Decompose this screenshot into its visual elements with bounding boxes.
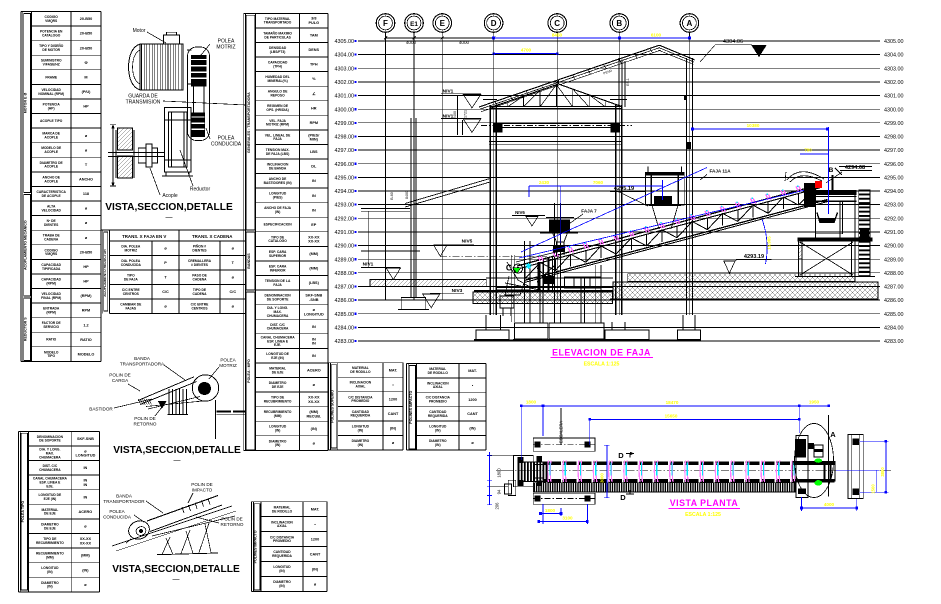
svg-text:MOTRIZ: MOTRIZ [219,363,237,368]
svg-text:CARGA: CARGA [112,378,129,383]
svg-text:MODELO: MODELO [78,353,95,357]
svg-text:2430: 2430 [539,180,550,185]
svg-text:1200: 1200 [311,537,319,541]
svg-text:DE EJE: DE EJE [272,370,285,374]
svg-text:VMQRS: VMQRS [45,19,58,23]
svg-text:DE EJE: DE EJE [272,385,285,389]
svg-text:PROMEDIO: PROMEDIO [429,400,447,404]
svg-text:IN: IN [83,495,87,499]
svg-text:PULG: PULG [309,21,320,25]
svg-text:4290.00: 4290.00 [335,244,355,250]
svg-text:C/C: C/C [162,290,169,294]
svg-text:1800: 1800 [545,508,556,513]
svg-text:15650: 15650 [665,413,678,418]
svg-text:94: 94 [497,489,502,494]
svg-text:4289.00: 4289.00 [335,257,355,263]
svg-text:(TPH): (TPH) [273,64,282,68]
svg-text:(MM): (MM) [46,556,54,560]
svg-text:(IN): (IN) [279,584,285,588]
svg-text:(RPM): (RPM) [46,281,56,285]
svg-text:BASTIDORES (IN): BASTIDORES (IN) [264,181,292,185]
svg-text:IN: IN [312,354,316,358]
svg-text:(IN): (IN) [358,428,364,432]
svg-text:CADENA: CADENA [192,277,207,281]
svg-text:(RPM): (RPM) [46,311,56,315]
svg-text:4296.00: 4296.00 [884,162,904,168]
svg-text:P: P [164,261,167,265]
svg-text:4000: 4000 [406,40,417,45]
svg-text:BANDA: BANDA [134,356,151,361]
svg-text:FAJA 7: FAJA 7 [581,209,597,214]
svg-text:HP: HP [83,280,89,284]
svg-text:1800: 1800 [526,400,537,405]
svg-text:4294.00: 4294.00 [884,189,904,195]
svg-text:4301.00: 4301.00 [884,94,904,100]
svg-text:4700: 4700 [521,48,532,53]
svg-text:(MM): (MM) [274,414,282,418]
svg-text:XX-XX: XX-XX [80,537,92,541]
svg-text:C/C: C/C [230,290,237,294]
svg-text:3000: 3000 [600,473,605,483]
svg-text:A: A [830,430,836,439]
svg-text:A: A [687,19,693,28]
svg-text:ACOPLAMIENTO REDUCTOR: ACOPLAMIENTO REDUCTOR [103,249,107,297]
svg-text:DE SOPORTE: DE SOPORTE [39,439,61,443]
svg-text:FINAL (RPM): FINAL (RPM) [41,296,61,300]
svg-text:4291.00: 4291.00 [884,230,904,236]
svg-text:PROMEDIO: PROMEDIO [351,399,369,403]
svg-text:TIPO: TIPO [47,354,55,358]
svg-text:MINERAL(%): MINERAL(%) [268,79,288,83]
svg-text:(MM): (MM) [309,252,319,256]
svg-text:4304.06: 4304.06 [723,39,743,45]
svg-text:CADENA: CADENA [44,238,59,242]
svg-text:MAT.: MAT. [311,508,320,512]
svg-text:IN: IN [312,325,316,329]
svg-text:4305.00: 4305.00 [884,39,904,45]
svg-text:AXIAL: AXIAL [433,385,443,389]
svg-text:BANDA: BANDA [116,494,133,499]
svg-text:RECUB.: RECUB. [307,415,322,419]
svg-text:4288.00: 4288.00 [884,271,904,277]
svg-text:CANT: CANT [467,412,478,416]
svg-text:4295.00: 4295.00 [884,176,904,182]
svg-text:EJE.: EJE. [46,485,53,489]
svg-text:POLINES IMPACTO: POLINES IMPACTO [409,390,413,423]
svg-text:(MM): (MM) [309,267,319,271]
svg-text:4291.00: 4291.00 [335,230,355,236]
svg-text:20-B50: 20-B50 [80,17,92,21]
svg-text:CATALOGO: CATALOGO [42,34,61,38]
svg-text:XX-XX: XX-XX [308,396,320,400]
svg-text:REQUERIDA: REQUERIDA [351,414,371,418]
svg-text:(IN): (IN) [47,585,53,589]
svg-text:3100: 3100 [562,516,573,521]
svg-text:C: C [506,263,512,273]
svg-text:4299.00: 4299.00 [335,121,355,127]
svg-text:LONGITUD: LONGITUD [75,454,95,458]
svg-text:REQUERIDA: REQUERIDA [272,554,292,558]
svg-text:MIN): MIN) [310,138,319,142]
svg-text:TRANS. X FAJA EN V: TRANS. X FAJA EN V [122,234,166,239]
svg-text:IN: IN [312,337,316,341]
svg-text:4287.00: 4287.00 [884,285,904,291]
svg-text:RECUBRIMIENTO: RECUBRIMIENTO [36,541,64,545]
svg-text:B-60: B-60 [390,192,394,200]
svg-text:4304.00: 4304.00 [884,53,904,59]
svg-text:TRANS. X CADENA: TRANS. X CADENA [192,234,233,239]
svg-text:FAJA: FAJA [273,283,282,287]
svg-text:C: C [554,19,560,28]
svg-text:RATIO: RATIO [46,338,56,342]
svg-text:(RPM): (RPM) [81,294,93,298]
svg-text:TRANSPORTADORA: TRANSPORTADORA [120,362,165,367]
svg-text:20-B50: 20-B50 [80,250,92,254]
svg-text:(IN): (IN) [47,570,53,574]
svg-text:IN: IN [83,479,87,483]
svg-text:(IN): (IN) [312,567,319,571]
svg-text:-SNB: -SNB [309,298,319,302]
svg-text:ACERO: ACERO [79,510,93,514]
svg-text:ESPECIFICACION: ESPECIFICACION [264,223,293,227]
svg-text:ELEVACION DE FAJA: ELEVACION DE FAJA [552,347,651,357]
svg-text:4299.00: 4299.00 [884,121,904,127]
svg-text:DE RODILLO: DE RODILLO [428,371,449,375]
svg-text:DE PARTICULAS: DE PARTICULAS [264,35,291,39]
svg-text:4304.00: 4304.00 [335,53,355,59]
svg-text:1200: 1200 [468,398,476,402]
svg-text:1.2: 1.2 [83,323,88,327]
svg-text:BANDAS: BANDAS [247,253,251,269]
svg-text:(MM): (MM) [81,554,91,558]
svg-text:4283.00: 4283.00 [335,339,355,345]
svg-text:FRAME: FRAME [45,75,58,79]
svg-text:D: D [491,19,497,28]
svg-text:DE BANDA: DE BANDA [269,166,287,170]
svg-text:FAJA 11A: FAJA 11A [709,169,731,174]
svg-text:4000: 4000 [459,40,470,45]
svg-text:XX-XX: XX-XX [80,541,92,545]
svg-text:Φ: Φ [84,61,87,65]
svg-text:4300.00: 4300.00 [884,107,904,113]
svg-text:VISTA,SECCION,DETALLE: VISTA,SECCION,DETALLE [112,564,240,575]
svg-text:TAM: TAM [310,34,318,38]
svg-text:4305.00: 4305.00 [335,39,355,45]
svg-text:DENS: DENS [309,48,320,52]
svg-text:(IN): (IN) [279,569,285,573]
svg-text:F: F [383,19,388,28]
svg-text:CONDUCIDA: CONDUCIDA [211,142,242,148]
svg-text:4288.00: 4288.00 [335,271,355,277]
svg-text:SKF-SNB: SKF-SNB [77,437,94,441]
svg-text:SUPERIOR: SUPERIOR [269,254,287,258]
svg-text:POLEA : MPO: POLEA : MPO [247,359,251,383]
svg-text:(MM): (MM) [309,410,319,414]
svg-text:20-B50: 20-B50 [80,32,92,36]
svg-text:4294.00: 4294.00 [335,189,355,195]
svg-text:(IN): (IN) [435,443,441,447]
svg-text:GENERALES : TRANSPORTADORA: GENERALES : TRANSPORTADORA [247,92,251,153]
svg-text:4292.00: 4292.00 [884,216,904,222]
svg-text:RPM: RPM [310,121,318,125]
svg-text:XX-XX: XX-XX [308,240,320,244]
svg-text:CHUMACERA: CHUMACERA [267,327,289,331]
svg-text:4298.00: 4298.00 [884,135,904,141]
svg-text:EJE (IN): EJE (IN) [271,356,284,360]
svg-text:POLIN DE: POLIN DE [191,482,212,487]
svg-text:4284.00: 4284.00 [884,326,904,332]
svg-text:4297.00: 4297.00 [884,148,904,154]
svg-text:IN: IN [312,208,316,212]
svg-text:8450: 8450 [552,33,563,38]
svg-text:VMQRS: VMQRS [45,252,58,256]
svg-text:ACOPLE: ACOPLE [44,179,59,183]
svg-text:Acople: Acople [162,193,178,199]
svg-text:(IN): (IN) [275,429,281,433]
svg-text:(LBS): (LBS) [309,281,320,285]
svg-text:PROMEDIO: PROMEDIO [273,539,291,543]
svg-text:NOMINAL (RPM): NOMINAL (RPM) [38,92,64,96]
svg-text:(P/U): (P/U) [82,90,92,94]
svg-text:REPOSO: REPOSO [271,94,286,98]
svg-text:(IN): (IN) [275,443,281,447]
svg-text:4301.00: 4301.00 [335,94,355,100]
svg-text:(IN): (IN) [82,568,89,572]
svg-text:IN: IN [312,194,316,198]
svg-text:VISTA,SECCION,DETALLE: VISTA,SECCION,DETALLE [113,445,241,456]
svg-text:ACOPLAMIENTO MECANICO: ACOPLAMIENTO MECANICO [24,220,28,270]
svg-text:DE SOPORTE: DE SOPORTE [267,298,289,302]
svg-text:(IN): (IN) [311,427,318,431]
svg-text:CANT: CANT [388,412,399,416]
svg-text:TRANSMISION: TRANSMISION [126,100,161,106]
svg-text:4000: 4000 [824,502,835,507]
svg-text:206: 206 [495,502,500,510]
svg-text:OPS. (HR/DIA): OPS. (HR/DIA) [266,108,288,112]
svg-text:20-B50: 20-B50 [80,46,92,50]
svg-text:POLIN DE: POLIN DE [134,416,155,421]
svg-text:Reductor: Reductor [190,187,211,193]
svg-text:1800: 1800 [497,468,502,478]
svg-text:B: B [616,19,622,28]
svg-text:2400: 2400 [453,111,457,119]
svg-text:NIV5: NIV5 [462,238,473,244]
svg-text:TIPIFICADA: TIPIFICADA [42,267,61,271]
svg-text:4293.00: 4293.00 [335,203,355,209]
svg-text:XX-XX: XX-XX [308,400,320,404]
svg-text:AXIAL: AXIAL [277,524,287,528]
svg-text:IN: IN [312,342,316,346]
svg-text:M: M [84,75,87,79]
svg-text:VELOCIDAD: VELOCIDAD [41,208,61,212]
svg-text:DE MOTOR: DE MOTOR [42,48,60,52]
svg-text:1950: 1950 [809,400,820,405]
svg-text:B: B [829,167,834,174]
svg-text:4293.19: 4293.19 [744,254,764,260]
svg-text:6100: 6100 [651,33,662,38]
svg-text:NIV1: NIV1 [363,261,374,267]
svg-text:CONDUCIDA: CONDUCIDA [103,515,132,520]
svg-text:1200: 1200 [389,397,397,401]
svg-text:EJE (IN): EJE (IN) [44,497,57,501]
svg-text:3800: 3800 [880,467,885,477]
svg-text:NIV6: NIV6 [515,210,525,215]
svg-text:(IN): (IN) [275,210,281,214]
svg-text:HP: HP [83,265,89,269]
svg-text:RETORNO: RETORNO [134,422,157,427]
svg-text:MOTRIZ (RPM): MOTRIZ (RPM) [266,123,289,127]
svg-text:CHUMACERA: CHUMACERA [39,455,61,459]
svg-text:4300.00: 4300.00 [335,107,355,113]
svg-text:MOTRIZ: MOTRIZ [216,45,235,51]
svg-text:DE EJE: DE EJE [44,526,57,530]
svg-text:ESCALA 1:125: ESCALA 1:125 [685,512,721,518]
svg-text:REDUCTOR S: REDUCTOR S [24,317,28,341]
svg-text:4290.00: 4290.00 [884,244,904,250]
svg-text:REQUERIDA: REQUERIDA [428,414,448,418]
svg-text:(PIES/: (PIES/ [308,133,320,137]
svg-text:1500: 1500 [871,484,876,494]
svg-text:1721: 1721 [464,110,468,118]
svg-text:3/8: 3/8 [311,17,316,21]
svg-text:# DIENTES: # DIENTES [191,263,209,267]
svg-text:RPM: RPM [82,309,90,313]
svg-text:HR: HR [311,106,317,110]
svg-text:(IN): (IN) [358,443,364,447]
svg-text:4285.00: 4285.00 [884,312,904,318]
svg-text:4283.00: 4283.00 [884,339,904,345]
svg-text:(IN): (IN) [435,428,441,432]
svg-text:DE ACOPLE: DE ACOPLE [42,194,62,198]
svg-text:RECUBRIMIENTO: RECUBRIMIENTO [264,400,292,404]
svg-text:DL: DL [311,165,317,169]
svg-text:AXIAL: AXIAL [355,385,365,389]
svg-text:POLIN DE: POLIN DE [221,517,242,522]
svg-text:D: D [618,451,624,460]
svg-text:10380: 10380 [747,123,760,128]
svg-text:IN: IN [83,483,87,487]
svg-text:4286.00: 4286.00 [884,298,904,304]
svg-text:—: — [173,576,180,583]
svg-text:(PIES): (PIES) [273,196,283,200]
svg-text:EJE.: EJE. [274,343,281,347]
svg-text:DIENTES: DIENTES [192,248,207,252]
svg-text:INFERIOR: INFERIOR [270,268,286,272]
svg-text:4303.00: 4303.00 [335,66,355,72]
svg-text:SKF-SNB: SKF-SNB [305,294,322,298]
svg-text:VISTA,SECCION,DETALLE: VISTA,SECCION,DETALLE [105,202,233,213]
svg-text:4293.00: 4293.00 [884,203,904,209]
svg-text:(LBS/FT3): (LBS/FT3) [270,50,286,54]
svg-text:IN: IN [312,179,316,183]
svg-text:HP: HP [83,105,89,109]
svg-text:SERVICIO: SERVICIO [43,325,59,329]
svg-text:DE FAJA: DE FAJA [124,277,139,281]
svg-text:POLIN DE: POLIN DE [109,373,130,378]
svg-text:DE EJE: DE EJE [44,512,57,516]
svg-text:LBS: LBS [310,150,318,154]
svg-text:4285.00: 4285.00 [335,312,355,318]
svg-text:RATIO: RATIO [80,338,92,342]
svg-text:4296.00: 4296.00 [335,162,355,168]
svg-text:DE FAJA (LBS): DE FAJA (LBS) [266,152,290,156]
svg-text:DE RODILLO: DE RODILLO [350,370,371,374]
svg-text:TRANSPORTADO: TRANSPORTADO [264,21,292,25]
svg-text:4294.68: 4294.68 [845,165,865,171]
svg-text:XX-XX: XX-XX [308,235,320,239]
svg-text:E1: E1 [410,21,418,28]
svg-text:4284.00: 4284.00 [335,326,355,332]
svg-text:MOTRIZ: MOTRIZ [124,248,137,252]
svg-text:∠: ∠ [312,91,316,96]
svg-text:POLEA TIPO: POLEA TIPO [21,501,25,523]
svg-text:4302.00: 4302.00 [884,80,904,86]
svg-text:TPH: TPH [310,63,318,67]
svg-text:POLINES IMPACTO: POLINES IMPACTO [254,530,258,563]
svg-text:DE RODILLO: DE RODILLO [272,509,293,513]
svg-text:118: 118 [83,192,89,196]
svg-text:7060: 7060 [593,180,604,185]
svg-text:4287.00: 4287.00 [335,285,355,291]
svg-text:ACOPLE: ACOPLE [44,150,59,154]
svg-text:MAT.: MAT. [389,368,398,372]
svg-text:CANT: CANT [310,552,321,556]
svg-text:TRANSPORTADOR: TRANSPORTADOR [103,499,145,504]
svg-text:CATALOGO: CATALOGO [268,239,287,243]
svg-text:4298.00: 4298.00 [335,135,355,141]
svg-text:MAT.: MAT. [468,369,477,373]
svg-text:700: 700 [804,148,812,153]
svg-text:CADENA: CADENA [192,292,207,296]
svg-text:4302.00: 4302.00 [335,80,355,86]
svg-text:(IN): (IN) [469,427,476,431]
svg-text:4292.00: 4292.00 [335,216,355,222]
svg-text:CHUMACERA: CHUMACERA [267,314,289,318]
svg-text:EP: EP [311,223,317,227]
svg-text:POLINES SUPERIO: POLINES SUPERIO [331,390,335,423]
svg-text:(HP): (HP) [48,106,55,110]
svg-text:FAJA: FAJA [273,137,282,141]
svg-text:CENTROS: CENTROS [191,306,208,310]
svg-text:VISTA PLANTA: VISTA PLANTA [670,498,739,508]
svg-text:ACOPLE TIPO: ACOPLE TIPO [40,119,63,123]
svg-text:CHUMACERA: CHUMACERA [39,468,61,472]
svg-text:V/FASE/HZ: V/FASE/HZ [43,63,60,67]
svg-text:ANCHO: ANCHO [79,178,93,182]
svg-text:ACERO: ACERO [307,369,321,373]
svg-text:E: E [440,19,446,28]
svg-text:FAJAS: FAJAS [125,306,136,310]
svg-text:8400: 8400 [405,191,409,199]
svg-text:4297.00: 4297.00 [335,148,355,154]
svg-text:—: — [166,214,173,221]
svg-text:Motor: Motor [133,28,146,34]
svg-text:D: D [620,493,626,502]
svg-text:DIENTES: DIENTES [44,223,59,227]
svg-text:ESCALA 1:125: ESCALA 1:125 [584,361,620,367]
svg-text:POLEA: POLEA [109,509,125,514]
svg-text:MOTOR E Ø: MOTOR E Ø [24,93,28,114]
svg-text:(IN): (IN) [390,427,397,431]
svg-text:4286.00: 4286.00 [335,298,355,304]
svg-text:—: — [174,457,181,464]
svg-text:18470: 18470 [666,400,679,405]
svg-text:4303.00: 4303.00 [884,66,904,72]
svg-text:RETORNO: RETORNO [221,522,244,527]
svg-text:CENTROS: CENTROS [123,292,140,296]
svg-text:IMPACTO: IMPACTO [192,488,213,493]
svg-text:BASTIDOR: BASTIDOR [89,407,113,412]
